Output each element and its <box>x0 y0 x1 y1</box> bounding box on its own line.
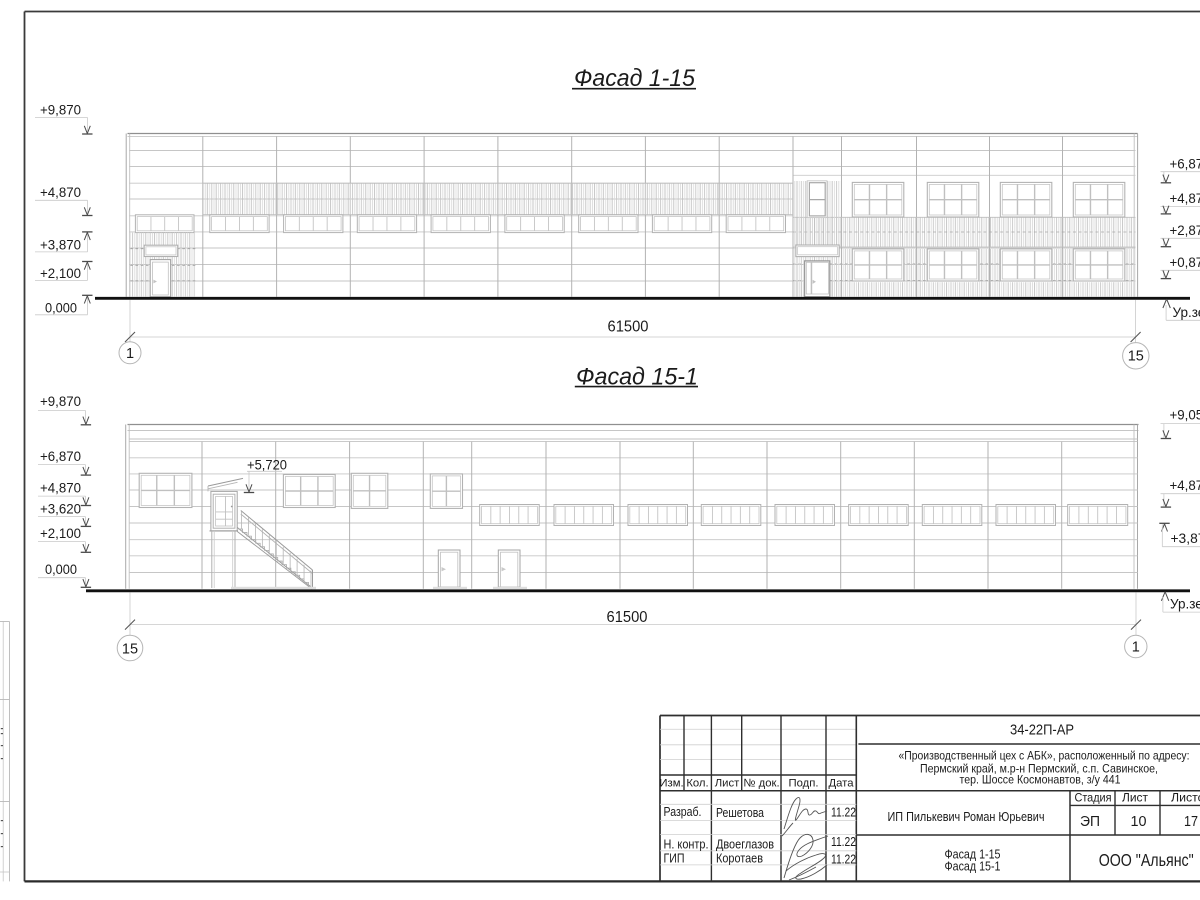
svg-text:+6,870: +6,870 <box>1170 157 1200 172</box>
svg-text:Изм.: Изм. <box>659 778 683 790</box>
svg-text:+4,870: +4,870 <box>40 481 81 496</box>
svg-text:0,000: 0,000 <box>45 562 77 577</box>
svg-text:Ур.земли: Ур.земли <box>1173 305 1200 320</box>
svg-text:Коротаев: Коротаев <box>716 851 763 866</box>
svg-text:ГИП: ГИП <box>664 851 685 866</box>
svg-text:+3,870: +3,870 <box>40 238 81 253</box>
svg-text:Фасад 15-1: Фасад 15-1 <box>945 859 1001 873</box>
svg-text:+4,870: +4,870 <box>1170 191 1200 206</box>
svg-text:ЭП: ЭП <box>1080 814 1100 830</box>
svg-text:15: 15 <box>122 641 138 657</box>
svg-text:11.22: 11.22 <box>831 834 856 849</box>
svg-text:15: 15 <box>1128 349 1144 365</box>
svg-text:+2,870: +2,870 <box>1170 223 1200 238</box>
svg-text:+3,620: +3,620 <box>40 501 81 516</box>
svg-text:Двоеглазов: Двоеглазов <box>716 837 774 852</box>
svg-text:+6,870: +6,870 <box>40 449 81 464</box>
svg-text:+3,870: +3,870 <box>1171 531 1200 546</box>
svg-text:+4,870: +4,870 <box>1170 478 1200 493</box>
svg-text:Лист: Лист <box>715 778 740 790</box>
svg-text:Дата: Дата <box>828 778 854 790</box>
svg-text:0,000: 0,000 <box>45 300 77 315</box>
svg-text:+5,720: +5,720 <box>247 458 287 473</box>
svg-text:тер. Шоссе Космонавтов, з/у 44: тер. Шоссе Космонавтов, з/у 441 <box>960 773 1121 787</box>
svg-text:+9,870: +9,870 <box>40 103 81 118</box>
svg-text:1: 1 <box>126 346 134 362</box>
svg-text:Листов: Листов <box>1171 790 1200 804</box>
svg-text:Стадия: Стадия <box>1075 790 1112 804</box>
svg-text:Ур.земли: Ур.земли <box>1170 597 1200 612</box>
svg-text:34-22П-АР: 34-22П-АР <box>1010 722 1074 739</box>
svg-text:11.22: 11.22 <box>831 805 856 820</box>
svg-text:«Производственный цех с АБК»,: «Производственный цех с АБК», расположен… <box>899 748 1190 762</box>
svg-text:Кол.: Кол. <box>686 778 708 790</box>
svg-text:61500: 61500 <box>607 609 648 626</box>
svg-text:+9,050: +9,050 <box>1170 408 1200 423</box>
svg-text:1: 1 <box>1132 640 1140 656</box>
svg-text:+2,100: +2,100 <box>40 266 81 281</box>
svg-text:+9,870: +9,870 <box>40 394 81 409</box>
svg-text:17: 17 <box>1184 814 1198 830</box>
svg-text:Решетова: Решетова <box>716 805 765 820</box>
svg-text:+2,100: +2,100 <box>40 526 81 541</box>
svg-text:№ док.: № док. <box>743 778 779 790</box>
svg-text:ИП Пилькевич Роман Юрьевич: ИП Пилькевич Роман Юрьевич <box>888 809 1045 824</box>
svg-text:+0,870: +0,870 <box>1170 255 1200 270</box>
svg-text:Подп.: Подп. <box>788 778 818 790</box>
svg-text:61500: 61500 <box>608 319 649 336</box>
svg-text:11.22: 11.22 <box>831 852 856 867</box>
svg-text:+4,870: +4,870 <box>40 185 81 200</box>
svg-text:10: 10 <box>1131 814 1147 830</box>
svg-text:ООО "Альянс": ООО "Альянс" <box>1099 850 1194 870</box>
svg-text:Н. контр.: Н. контр. <box>664 837 709 852</box>
svg-text:Разраб.: Разраб. <box>664 804 702 819</box>
svg-text:Лист: Лист <box>1122 790 1148 804</box>
